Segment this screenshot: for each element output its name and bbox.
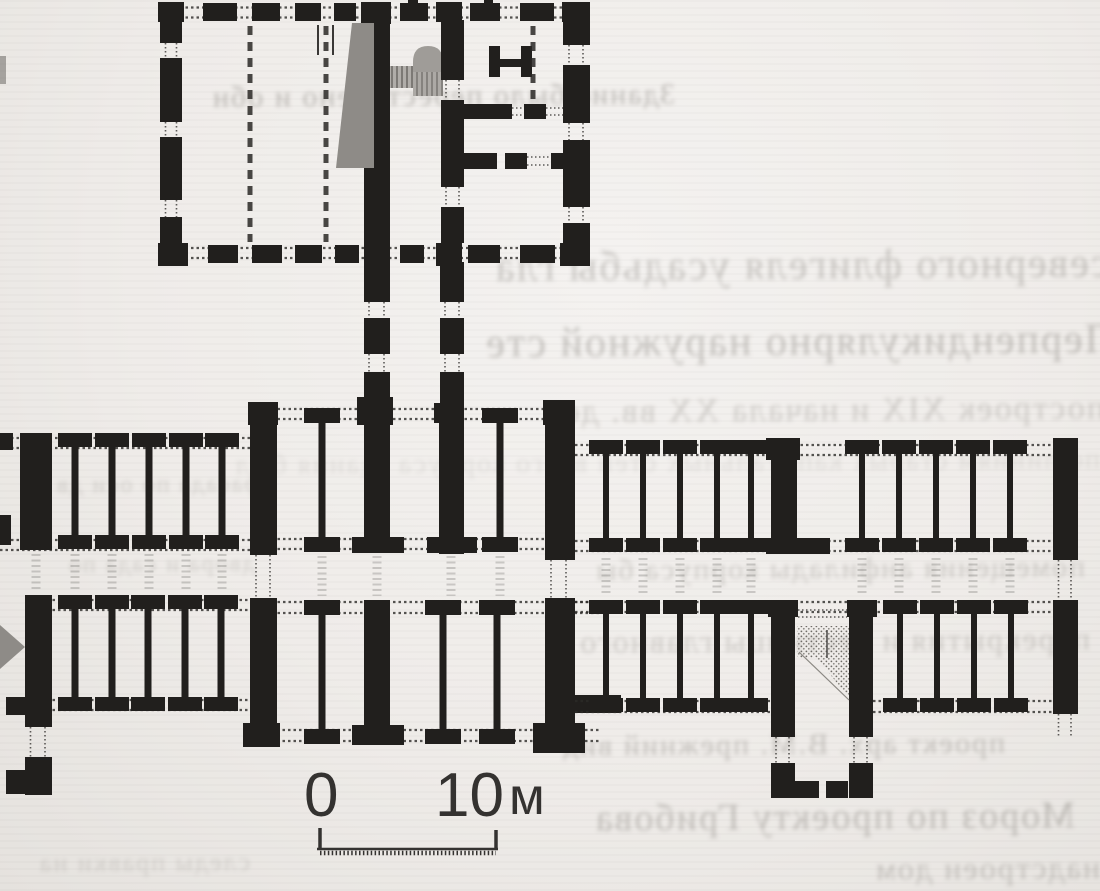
entry-steps (390, 66, 413, 88)
scan-edge-mark (0, 56, 6, 84)
entry-ramp-left (0, 625, 25, 669)
scale-unit-label: м (509, 768, 545, 826)
left-wing (0, 433, 250, 795)
scale-ten-label: 10 (435, 761, 504, 830)
scale-bar: 0 10 м (304, 761, 545, 853)
scale-zero-label: 0 (304, 761, 338, 830)
stair-run (797, 626, 849, 658)
entry-arch-steps (413, 72, 443, 96)
central-block (243, 397, 621, 753)
stair-run (817, 658, 849, 698)
top-block (158, 0, 590, 266)
right-wing (575, 438, 1078, 798)
scanned-page: Здание было перестроено и обн северного … (0, 0, 1100, 891)
stair-h-symbol (489, 46, 532, 77)
gallery-connector (364, 262, 464, 410)
ramp-triangle (336, 23, 374, 168)
floor-plan-drawing: 0 10 м (0, 0, 1100, 891)
stair-bay (768, 600, 877, 798)
